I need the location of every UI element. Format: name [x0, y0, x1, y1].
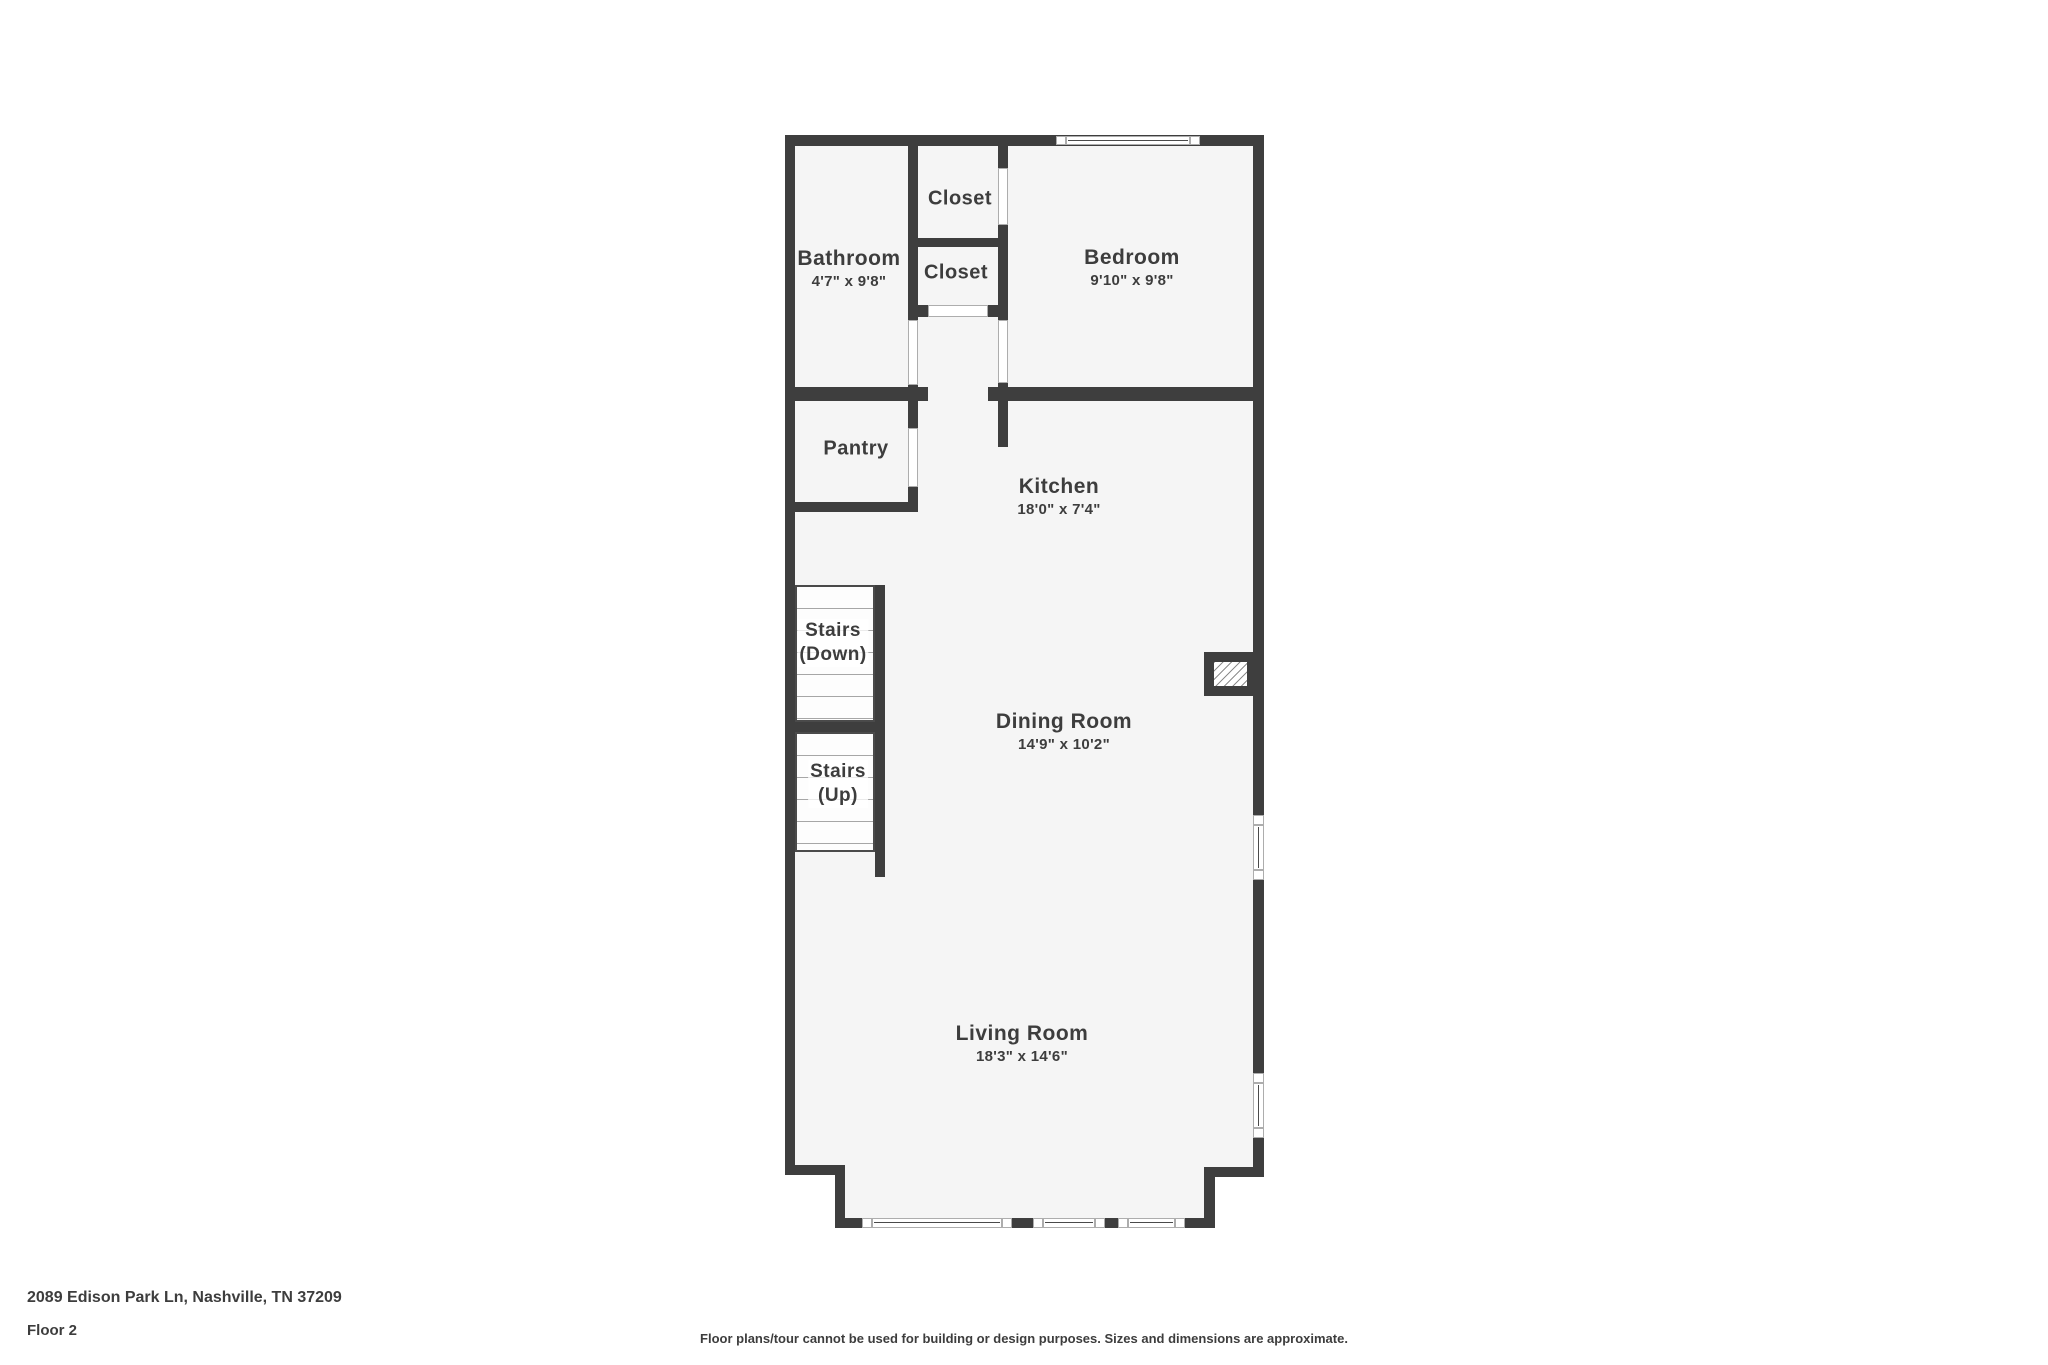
window-pane	[1253, 1083, 1264, 1128]
closet1-door-opening	[998, 168, 1008, 225]
window-living-bottom-2	[1033, 1218, 1105, 1228]
wall-kitchen-top	[988, 387, 1264, 401]
room-size: 18'3" x 14'6"	[956, 1046, 1089, 1067]
room-label-stairs-up: Stairs (Up)	[808, 760, 868, 808]
window-bedroom-top	[1056, 136, 1200, 145]
wall-pantry-top	[785, 387, 928, 401]
floor-area-bumpout	[845, 1160, 1204, 1218]
room-size: 4'7" x 9'8"	[797, 271, 900, 292]
window-living-bottom-1	[862, 1218, 1012, 1228]
room-size: 14'9" x 10'2"	[996, 734, 1132, 755]
window-cap	[1253, 815, 1264, 825]
window-cap	[1253, 870, 1264, 880]
wall-closet2-bottom-left	[908, 305, 928, 317]
room-size: 9'10" x 9'8"	[1084, 270, 1180, 291]
window-pane	[1253, 825, 1264, 870]
room-label-bedroom: Bedroom 9'10" x 9'8"	[1084, 245, 1180, 291]
stairs-line2: (Down)	[797, 643, 868, 667]
disclaimer-text: Floor plans/tour cannot be used for buil…	[700, 1331, 1348, 1346]
room-name: Living Room	[956, 1021, 1089, 1046]
wall-outer-left	[785, 135, 795, 1175]
wall-bedroom-left-upper	[998, 135, 1008, 168]
window-cap	[1095, 1218, 1105, 1228]
wall-bumpout-left	[835, 1165, 845, 1228]
wall-pantry-bottom	[785, 502, 918, 512]
wall-bedroom-left-mid	[998, 225, 1008, 320]
property-address: 2089 Edison Park Ln, Nashville, TN 37209	[27, 1289, 342, 1307]
stairs-line2: (Up)	[808, 784, 868, 808]
stairs-line1: Stairs	[797, 619, 868, 643]
wall-bathroom-right-upper	[908, 135, 918, 320]
window-cap	[1253, 1128, 1264, 1138]
fireplace	[1204, 652, 1257, 696]
window-pane	[1128, 1218, 1175, 1228]
room-label-stairs-down: Stairs (Down)	[797, 619, 868, 667]
bedroom-door-opening	[998, 320, 1008, 383]
window-pane	[1043, 1218, 1095, 1228]
window-cap	[1056, 136, 1066, 145]
room-label-living: Living Room 18'3" x 14'6"	[956, 1021, 1089, 1067]
room-label-bathroom: Bathroom 4'7" x 9'8"	[797, 246, 900, 292]
window-cap	[1033, 1218, 1043, 1228]
room-label-closet-mid: Closet	[924, 261, 988, 286]
window-cap	[1190, 136, 1200, 145]
wall-bumpout-right	[1204, 1167, 1215, 1228]
window-living-bottom-3	[1118, 1218, 1185, 1228]
window-pane	[1066, 136, 1190, 145]
window-dining-right	[1253, 815, 1264, 880]
floor-plan-page: Bathroom 4'7" x 9'8" Closet Closet Bedro…	[0, 0, 2048, 1365]
room-label-pantry: Pantry	[823, 437, 888, 462]
room-name: Pantry	[823, 437, 888, 462]
window-cap	[1118, 1218, 1128, 1228]
window-cap	[1002, 1218, 1012, 1228]
window-cap	[1253, 1073, 1264, 1083]
closet2-door-opening	[928, 305, 988, 317]
fireplace-hatch	[1214, 662, 1247, 686]
wall-stairs-separator	[785, 722, 885, 732]
room-name: Kitchen	[1017, 474, 1100, 499]
window-pane	[872, 1218, 1002, 1228]
bathroom-door-opening	[908, 320, 918, 385]
window-cap	[1175, 1218, 1185, 1228]
room-name: Dining Room	[996, 709, 1132, 734]
pantry-door-opening	[908, 428, 918, 487]
floor-number-label: Floor 2	[27, 1322, 77, 1339]
stairs-line1: Stairs	[808, 760, 868, 784]
room-label-kitchen: Kitchen 18'0" x 7'4"	[1017, 474, 1100, 520]
room-name: Closet	[924, 261, 988, 286]
room-label-dining: Dining Room 14'9" x 10'2"	[996, 709, 1132, 755]
window-cap	[862, 1218, 872, 1228]
room-size: 18'0" x 7'4"	[1017, 499, 1100, 520]
room-name: Bedroom	[1084, 245, 1180, 270]
room-name: Bathroom	[797, 246, 900, 271]
window-living-right	[1253, 1073, 1264, 1138]
room-name: Closet	[928, 187, 992, 212]
wall-closet-divider	[908, 238, 1008, 247]
room-label-closet-top: Closet	[928, 187, 992, 212]
